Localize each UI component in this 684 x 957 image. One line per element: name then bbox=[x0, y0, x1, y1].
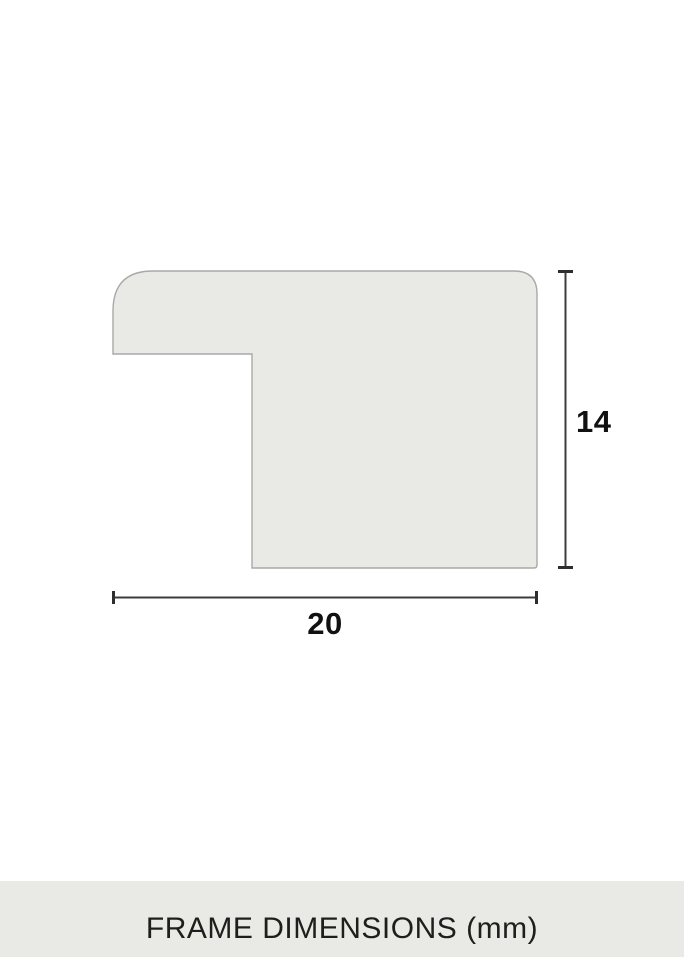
height-dimension-label: 14 bbox=[576, 406, 611, 437]
caption-bar: FRAME DIMENSIONS (mm) bbox=[0, 881, 684, 957]
width-dimension-label: 20 bbox=[307, 608, 342, 639]
frame-dimensions-figure: 14 20 FRAME DIMENSIONS (mm) bbox=[0, 0, 684, 957]
profile-diagram bbox=[0, 0, 684, 700]
height-dimension-line bbox=[558, 271, 573, 568]
width-dimension-line bbox=[113, 591, 537, 604]
frame-profile-cross-section bbox=[113, 271, 537, 568]
caption-text: FRAME DIMENSIONS (mm) bbox=[146, 911, 538, 947]
